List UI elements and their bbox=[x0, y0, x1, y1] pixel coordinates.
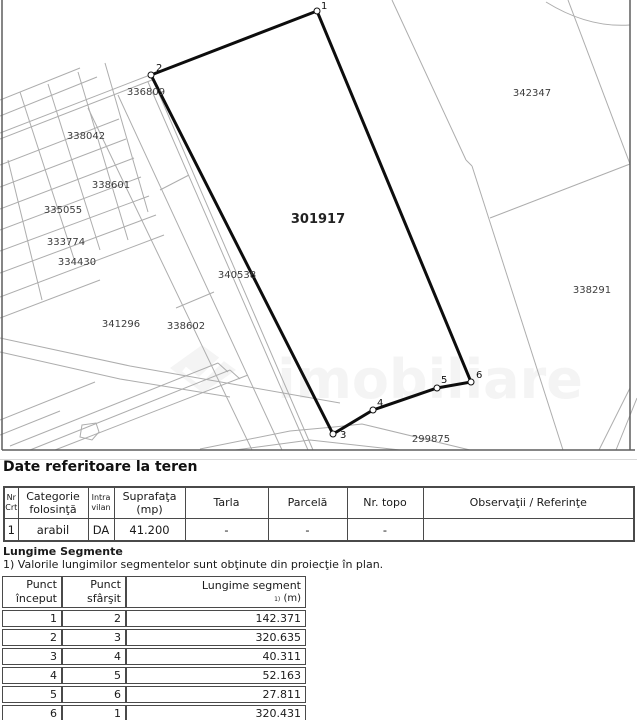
segments-header-row: Punct început Punct sfârşit Lungime segm… bbox=[2, 576, 306, 608]
header-line: Lungime segment bbox=[127, 579, 301, 593]
parcel-boundary-path bbox=[80, 423, 99, 440]
header-line: Tarla bbox=[186, 496, 268, 509]
terrain-header-parcela: Parcelă bbox=[268, 487, 347, 519]
segments-header-length: Lungime segment 1) (m) bbox=[126, 576, 306, 608]
terrain-cell: 41.200 bbox=[114, 519, 185, 542]
segment-cell: 5 bbox=[2, 686, 62, 703]
segment-cell: 1 bbox=[62, 705, 126, 720]
segment-cell: 2 bbox=[62, 610, 126, 627]
parcel-boundary-line bbox=[568, 0, 630, 164]
header-line: (mp) bbox=[115, 503, 185, 516]
header-line: Categorie bbox=[19, 490, 88, 503]
parcel-boundary-line bbox=[392, 0, 466, 160]
parcel-number-label: 334430 bbox=[58, 257, 96, 268]
parcel-boundary-line bbox=[0, 411, 60, 435]
parcel-boundary-line bbox=[466, 160, 472, 166]
header-line: Nr bbox=[5, 493, 18, 503]
terrain-header-tarla: Tarla bbox=[185, 487, 268, 519]
parcel-number-label: 338291 bbox=[573, 285, 611, 296]
segment-cell: 52.163 bbox=[126, 667, 306, 684]
parcel-boundary-line bbox=[176, 292, 214, 308]
table-row: 3440.311 bbox=[2, 648, 306, 665]
parcel-number-label: 338601 bbox=[92, 180, 130, 191]
parcel-number-label: 299875 bbox=[412, 434, 450, 445]
footnote-marker: 1) bbox=[274, 596, 280, 603]
header-line: Suprafaţa bbox=[115, 490, 185, 503]
vertex-marker bbox=[468, 379, 474, 385]
parcel-boundary-line bbox=[8, 160, 42, 300]
terrain-cell: - bbox=[347, 519, 423, 542]
segments-footnote: 1) Valorile lungimilor segmentelor sunt … bbox=[3, 558, 383, 571]
header-line: sfârşit bbox=[63, 592, 121, 606]
terrain-cell: - bbox=[268, 519, 347, 542]
vertex-number: 5 bbox=[441, 375, 447, 386]
parcel-boundary-line bbox=[10, 363, 218, 446]
terrain-header-categorie: Categorie folosinţă bbox=[18, 487, 88, 519]
header-line: Punct bbox=[3, 578, 57, 592]
segments-table-body: 12142.37123320.6353440.3114552.1635627.8… bbox=[2, 610, 306, 720]
table-row: 61320.431 bbox=[2, 705, 306, 720]
header-line: Intra bbox=[89, 493, 114, 503]
table-row: 23320.635 bbox=[2, 629, 306, 646]
segment-cell: 3 bbox=[62, 629, 126, 646]
parcel-boundary-path bbox=[546, 2, 630, 25]
header-unit: 1) (m) bbox=[127, 593, 301, 606]
segments-header-start: Punct început bbox=[2, 576, 62, 608]
segments-table: Punct început Punct sfârşit Lungime segm… bbox=[2, 574, 306, 720]
parcel-number-label: 301917 bbox=[291, 212, 345, 227]
terrain-header-nr-crt: Nr Crt bbox=[4, 487, 18, 519]
cadastral-document-page: imobiliare123456336809338042338601335055… bbox=[0, 0, 637, 720]
terrain-table: Nr Crt Categorie folosinţă Intra vilan S… bbox=[3, 486, 635, 542]
parcel-number-label: 340538 bbox=[218, 270, 256, 281]
segment-cell: 2 bbox=[2, 629, 62, 646]
vertex-marker bbox=[148, 72, 154, 78]
header-line: Punct bbox=[63, 578, 121, 592]
parcel-number-label: 335055 bbox=[44, 205, 82, 216]
table-row: 5627.811 bbox=[2, 686, 306, 703]
segment-cell: 5 bbox=[62, 667, 126, 684]
parcel-boundary-line bbox=[599, 388, 630, 450]
header-line: Observaţii / Referinţe bbox=[424, 496, 634, 509]
vertex-marker bbox=[370, 407, 376, 413]
terrain-header-observatii: Observaţii / Referinţe bbox=[423, 487, 634, 519]
parcel-boundary-line bbox=[148, 82, 308, 450]
segment-cell: 27.811 bbox=[126, 686, 306, 703]
parcel-boundary-path bbox=[235, 440, 400, 450]
table-row: 4552.163 bbox=[2, 667, 306, 684]
terrain-cell bbox=[423, 519, 634, 542]
segments-section-title: Lungime Segmente bbox=[3, 545, 123, 558]
segment-cell: 142.371 bbox=[126, 610, 306, 627]
vertex-marker bbox=[314, 8, 320, 14]
terrain-cell: arabil bbox=[18, 519, 88, 542]
vertex-number: 4 bbox=[377, 398, 383, 409]
parcel-boundary-line bbox=[0, 75, 150, 133]
parcel-number-label: 341296 bbox=[102, 319, 140, 330]
parcel-boundary-line bbox=[0, 280, 100, 318]
parcel-number-label: 338042 bbox=[67, 131, 105, 142]
segment-cell: 6 bbox=[2, 705, 62, 720]
segment-cell: 1 bbox=[2, 610, 62, 627]
vertex-marker bbox=[330, 431, 336, 437]
header-line: folosinţă bbox=[19, 503, 88, 516]
terrain-cell: 1 bbox=[4, 519, 18, 542]
terrain-header-suprafata: Suprafaţa (mp) bbox=[114, 487, 185, 519]
parcel-boundary-line bbox=[48, 84, 100, 250]
terrain-table-body: 1arabilDA41.200--- bbox=[4, 519, 634, 542]
header-line: Nr. topo bbox=[348, 496, 423, 509]
segment-cell: 320.635 bbox=[126, 629, 306, 646]
parcel-boundary-line bbox=[30, 370, 230, 450]
terrain-header-nr-topo: Nr. topo bbox=[347, 487, 423, 519]
parcel-boundary-line bbox=[78, 72, 128, 240]
segment-cell: 320.431 bbox=[126, 705, 306, 720]
segment-cell: 40.311 bbox=[126, 648, 306, 665]
header-line: început bbox=[3, 592, 57, 606]
terrain-cell: DA bbox=[88, 519, 114, 542]
segment-cell: 4 bbox=[62, 648, 126, 665]
parcel-boundary-line bbox=[0, 77, 97, 116]
vertex-number: 3 bbox=[340, 430, 346, 441]
parcel-boundary-line bbox=[0, 382, 95, 420]
parcel-boundary-line bbox=[616, 398, 637, 450]
parcel-number-label: 338602 bbox=[167, 321, 205, 332]
table-row: 12142.371 bbox=[2, 610, 306, 627]
parcel-boundary-line bbox=[230, 370, 240, 379]
vertex-number: 2 bbox=[156, 63, 162, 74]
segment-cell: 4 bbox=[2, 667, 62, 684]
cadastral-map: imobiliare123456336809338042338601335055… bbox=[0, 0, 637, 456]
parcel-boundary-line bbox=[160, 175, 189, 190]
watermark-text: imobiliare bbox=[277, 348, 583, 411]
terrain-cell: - bbox=[185, 519, 268, 542]
vertex-number: 6 bbox=[476, 370, 482, 381]
table-row: 1arabilDA41.200--- bbox=[4, 519, 634, 542]
segment-cell: 6 bbox=[62, 686, 126, 703]
terrain-header-intravilan: Intra vilan bbox=[88, 487, 114, 519]
unit-label: (m) bbox=[283, 593, 301, 604]
parcel-number-label: 342347 bbox=[513, 88, 551, 99]
parcel-boundary-line bbox=[0, 68, 80, 100]
parcel-number-label: 336809 bbox=[127, 87, 165, 98]
header-line: Parcelă bbox=[269, 496, 347, 509]
cadastral-map-svg: imobiliare123456336809338042338601335055… bbox=[0, 0, 637, 456]
vertex-marker bbox=[434, 385, 440, 391]
parcel-number-label: 333774 bbox=[47, 237, 85, 248]
header-line: Crt bbox=[5, 503, 18, 513]
parcel-boundary-line bbox=[490, 164, 630, 218]
segments-header-end: Punct sfârşit bbox=[62, 576, 126, 608]
terrain-header-row: Nr Crt Categorie folosinţă Intra vilan S… bbox=[4, 487, 634, 519]
header-line: vilan bbox=[89, 503, 114, 513]
terrain-section-title: Date referitoare la teren bbox=[3, 459, 198, 475]
segment-cell: 3 bbox=[2, 648, 62, 665]
parcel-boundary-line bbox=[118, 95, 282, 450]
vertex-number: 1 bbox=[321, 1, 327, 12]
